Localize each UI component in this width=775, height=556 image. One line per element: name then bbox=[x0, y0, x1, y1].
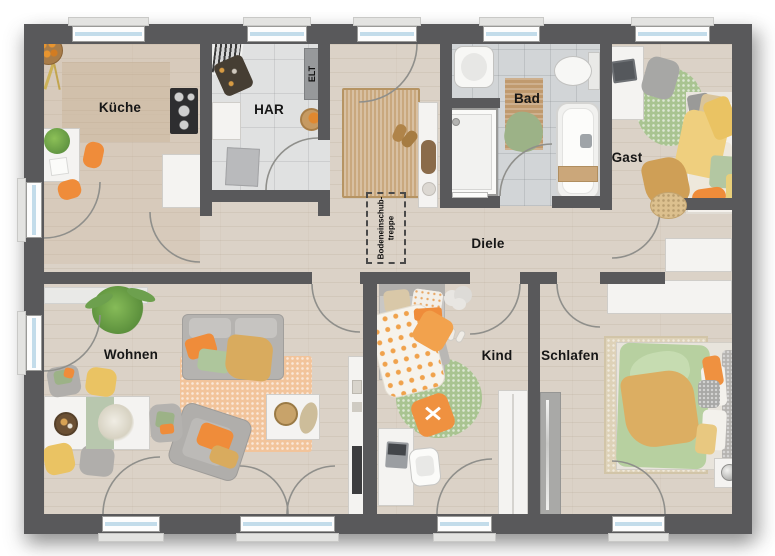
terrace-door bbox=[437, 516, 492, 532]
kitchen-tall-unit bbox=[162, 154, 204, 208]
terrace-door-double bbox=[240, 516, 335, 532]
window-sill bbox=[17, 311, 26, 375]
pillow bbox=[694, 423, 717, 455]
plant-icon bbox=[44, 128, 70, 154]
window-sill bbox=[479, 17, 544, 26]
washing-machine bbox=[212, 102, 241, 140]
window-sill bbox=[17, 178, 26, 242]
window-sill bbox=[243, 17, 311, 26]
door-sill bbox=[353, 17, 421, 26]
window bbox=[483, 26, 540, 42]
window bbox=[72, 26, 145, 42]
terrace-door bbox=[102, 516, 160, 532]
serving-bowl bbox=[54, 412, 78, 436]
window-sill bbox=[433, 533, 496, 542]
laptop bbox=[611, 58, 638, 83]
books bbox=[352, 380, 362, 394]
window bbox=[26, 182, 42, 238]
wall-bad-gast bbox=[600, 44, 612, 210]
wall-mid-3 bbox=[520, 272, 557, 284]
appliance-box bbox=[225, 147, 260, 187]
window bbox=[26, 315, 42, 371]
room-label-bad: Bad bbox=[497, 91, 557, 106]
wall-wohnen-kind bbox=[363, 284, 377, 514]
wall-har-bottom bbox=[200, 190, 330, 202]
room-label-gast: Gast bbox=[592, 150, 662, 165]
wall-bad-bottom-right bbox=[552, 196, 612, 208]
window-sill bbox=[236, 533, 339, 542]
wall-mid-4 bbox=[600, 272, 665, 284]
toilet-bowl bbox=[554, 56, 592, 86]
flower-bouquet bbox=[98, 404, 134, 442]
bedroom-wardrobe-top bbox=[607, 280, 732, 314]
books bbox=[352, 402, 362, 412]
window-sill bbox=[631, 17, 714, 26]
wall-shower-stub bbox=[440, 98, 500, 108]
wardrobe-handle bbox=[512, 394, 514, 514]
wall-entry-bad bbox=[440, 44, 452, 198]
terrace-door bbox=[612, 516, 665, 532]
attic-stairs-box: Bodeneinschub- treppe bbox=[366, 192, 406, 264]
wall-mid-2 bbox=[360, 272, 470, 284]
pillow bbox=[698, 380, 720, 408]
window bbox=[635, 26, 710, 42]
laptop-screen bbox=[388, 443, 407, 455]
chair bbox=[79, 444, 116, 477]
room-label-wohnen: Wohnen bbox=[91, 347, 171, 362]
wall-kind-schlafen bbox=[528, 284, 540, 514]
wall-exterior-right bbox=[732, 24, 752, 534]
entrance-door bbox=[357, 26, 417, 42]
attic-stairs-label-line1: Bodeneinschub- bbox=[376, 197, 386, 260]
hall-closet bbox=[665, 238, 732, 272]
cloud-decor bbox=[452, 298, 466, 310]
window-sill bbox=[608, 533, 669, 542]
room-label-kind: Kind bbox=[467, 348, 527, 363]
room-label-har: HAR bbox=[239, 102, 299, 117]
room-label-kueche: Küche bbox=[80, 100, 160, 115]
wall-exterior-left bbox=[24, 24, 44, 534]
window-sill bbox=[98, 533, 164, 542]
napkin bbox=[160, 423, 175, 434]
bath-faucet bbox=[580, 134, 592, 148]
papers bbox=[49, 157, 69, 176]
wall-har-entry-upper bbox=[318, 44, 330, 140]
window bbox=[247, 26, 307, 42]
bedroom-wardrobe-left bbox=[540, 392, 561, 520]
chair bbox=[84, 366, 118, 398]
room-label-schlafen: Schlafen bbox=[530, 348, 610, 363]
shower-drain bbox=[452, 118, 460, 126]
bathtub-caddy bbox=[558, 166, 598, 182]
desk-chair-seat bbox=[415, 455, 435, 477]
elt-label: ELT bbox=[307, 66, 317, 82]
window-sill bbox=[68, 17, 149, 26]
wall-mid-1 bbox=[44, 272, 312, 284]
stove-cooktop bbox=[170, 88, 198, 134]
tray bbox=[274, 402, 298, 426]
floor-plan: Küche ELT HAR Bodeneinschub- treppe Diel… bbox=[0, 0, 775, 556]
attic-stairs-label-line2: treppe bbox=[386, 197, 396, 260]
hat bbox=[422, 182, 436, 196]
knit-pouf bbox=[650, 192, 687, 219]
wardrobe-mirror bbox=[546, 400, 549, 510]
tv bbox=[352, 446, 362, 494]
throw-blanket bbox=[224, 334, 274, 383]
bathroom-sink-basin bbox=[461, 53, 487, 81]
coats bbox=[421, 140, 436, 174]
room-label-diele: Diele bbox=[453, 236, 523, 251]
towel-rail bbox=[452, 192, 488, 198]
